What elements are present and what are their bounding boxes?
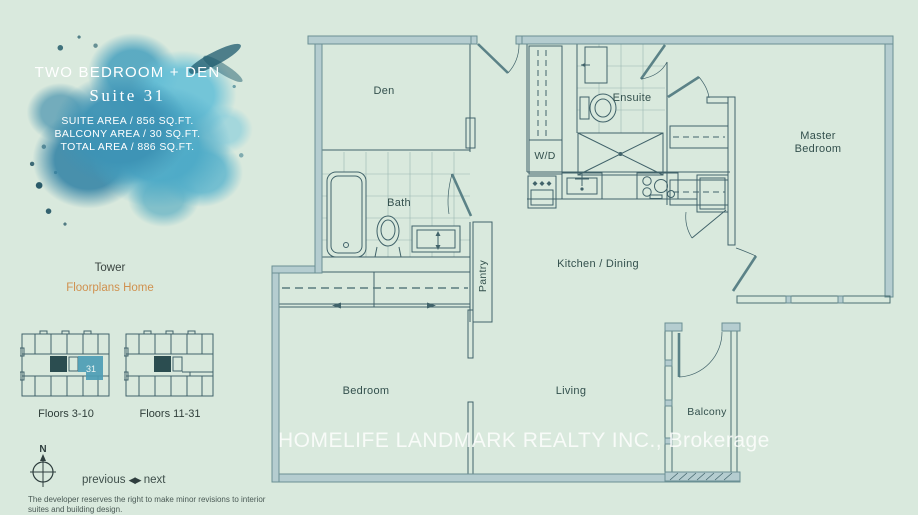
ensuite-vanity	[581, 47, 607, 83]
slider-arrow-icon	[332, 303, 341, 309]
room-label-pantry: Pantry	[477, 250, 489, 302]
slider-arrow-icon	[427, 303, 436, 309]
cooktop	[637, 173, 678, 199]
suite-area: SUITE AREA / 856 SQ.FT.	[25, 115, 230, 128]
suite-type-title: TWO BEDROOM + DEN	[25, 64, 230, 81]
room-label-kitchen-dining: Kitchen / Dining	[548, 258, 648, 270]
master-window-wall	[737, 296, 890, 303]
balcony-area: BALCONY AREA / 30 SQ.FT.	[25, 128, 230, 141]
room-label-bath: Bath	[379, 197, 419, 209]
room-label-ensuite: Ensuite	[602, 92, 662, 104]
entry-door	[478, 44, 519, 73]
balcony-walls	[665, 323, 740, 481]
master-closet	[670, 126, 728, 238]
balcony-door	[679, 332, 722, 377]
bath-vanity	[412, 226, 460, 252]
room-label-den: Den	[364, 85, 404, 97]
shower	[578, 133, 663, 175]
master-west-wall	[728, 97, 735, 245]
room-label-living: Living	[541, 385, 601, 397]
bath-door	[448, 174, 471, 216]
suite-number: Suite 31	[25, 86, 230, 106]
suite-info-panel: TWO BEDROOM + DEN Suite 31 SUITE AREA / …	[25, 64, 230, 154]
ensuite-door	[641, 45, 667, 79]
room-label-balcony: Balcony	[677, 406, 737, 418]
master-bedroom-door	[733, 248, 756, 291]
total-area: TOTAL AREA / 886 SQ.FT.	[25, 141, 230, 154]
master-hall-door	[668, 77, 709, 98]
room-label-master-bedroom: Master Bedroom	[778, 130, 858, 156]
room-label-bedroom: Bedroom	[326, 385, 406, 397]
kitchen-counter	[527, 172, 730, 212]
range	[528, 176, 556, 208]
brokerage-watermark: HOMELIFE LANDMARK REALTY INC., Brokerage	[278, 429, 770, 453]
floorplan-page: { "sidebar": { "suite": { "title": "TWO …	[0, 0, 918, 504]
fridge	[697, 175, 728, 212]
kitchen-sink	[562, 173, 602, 199]
bathtub	[327, 172, 366, 257]
room-label-wd: W/D	[527, 150, 563, 162]
